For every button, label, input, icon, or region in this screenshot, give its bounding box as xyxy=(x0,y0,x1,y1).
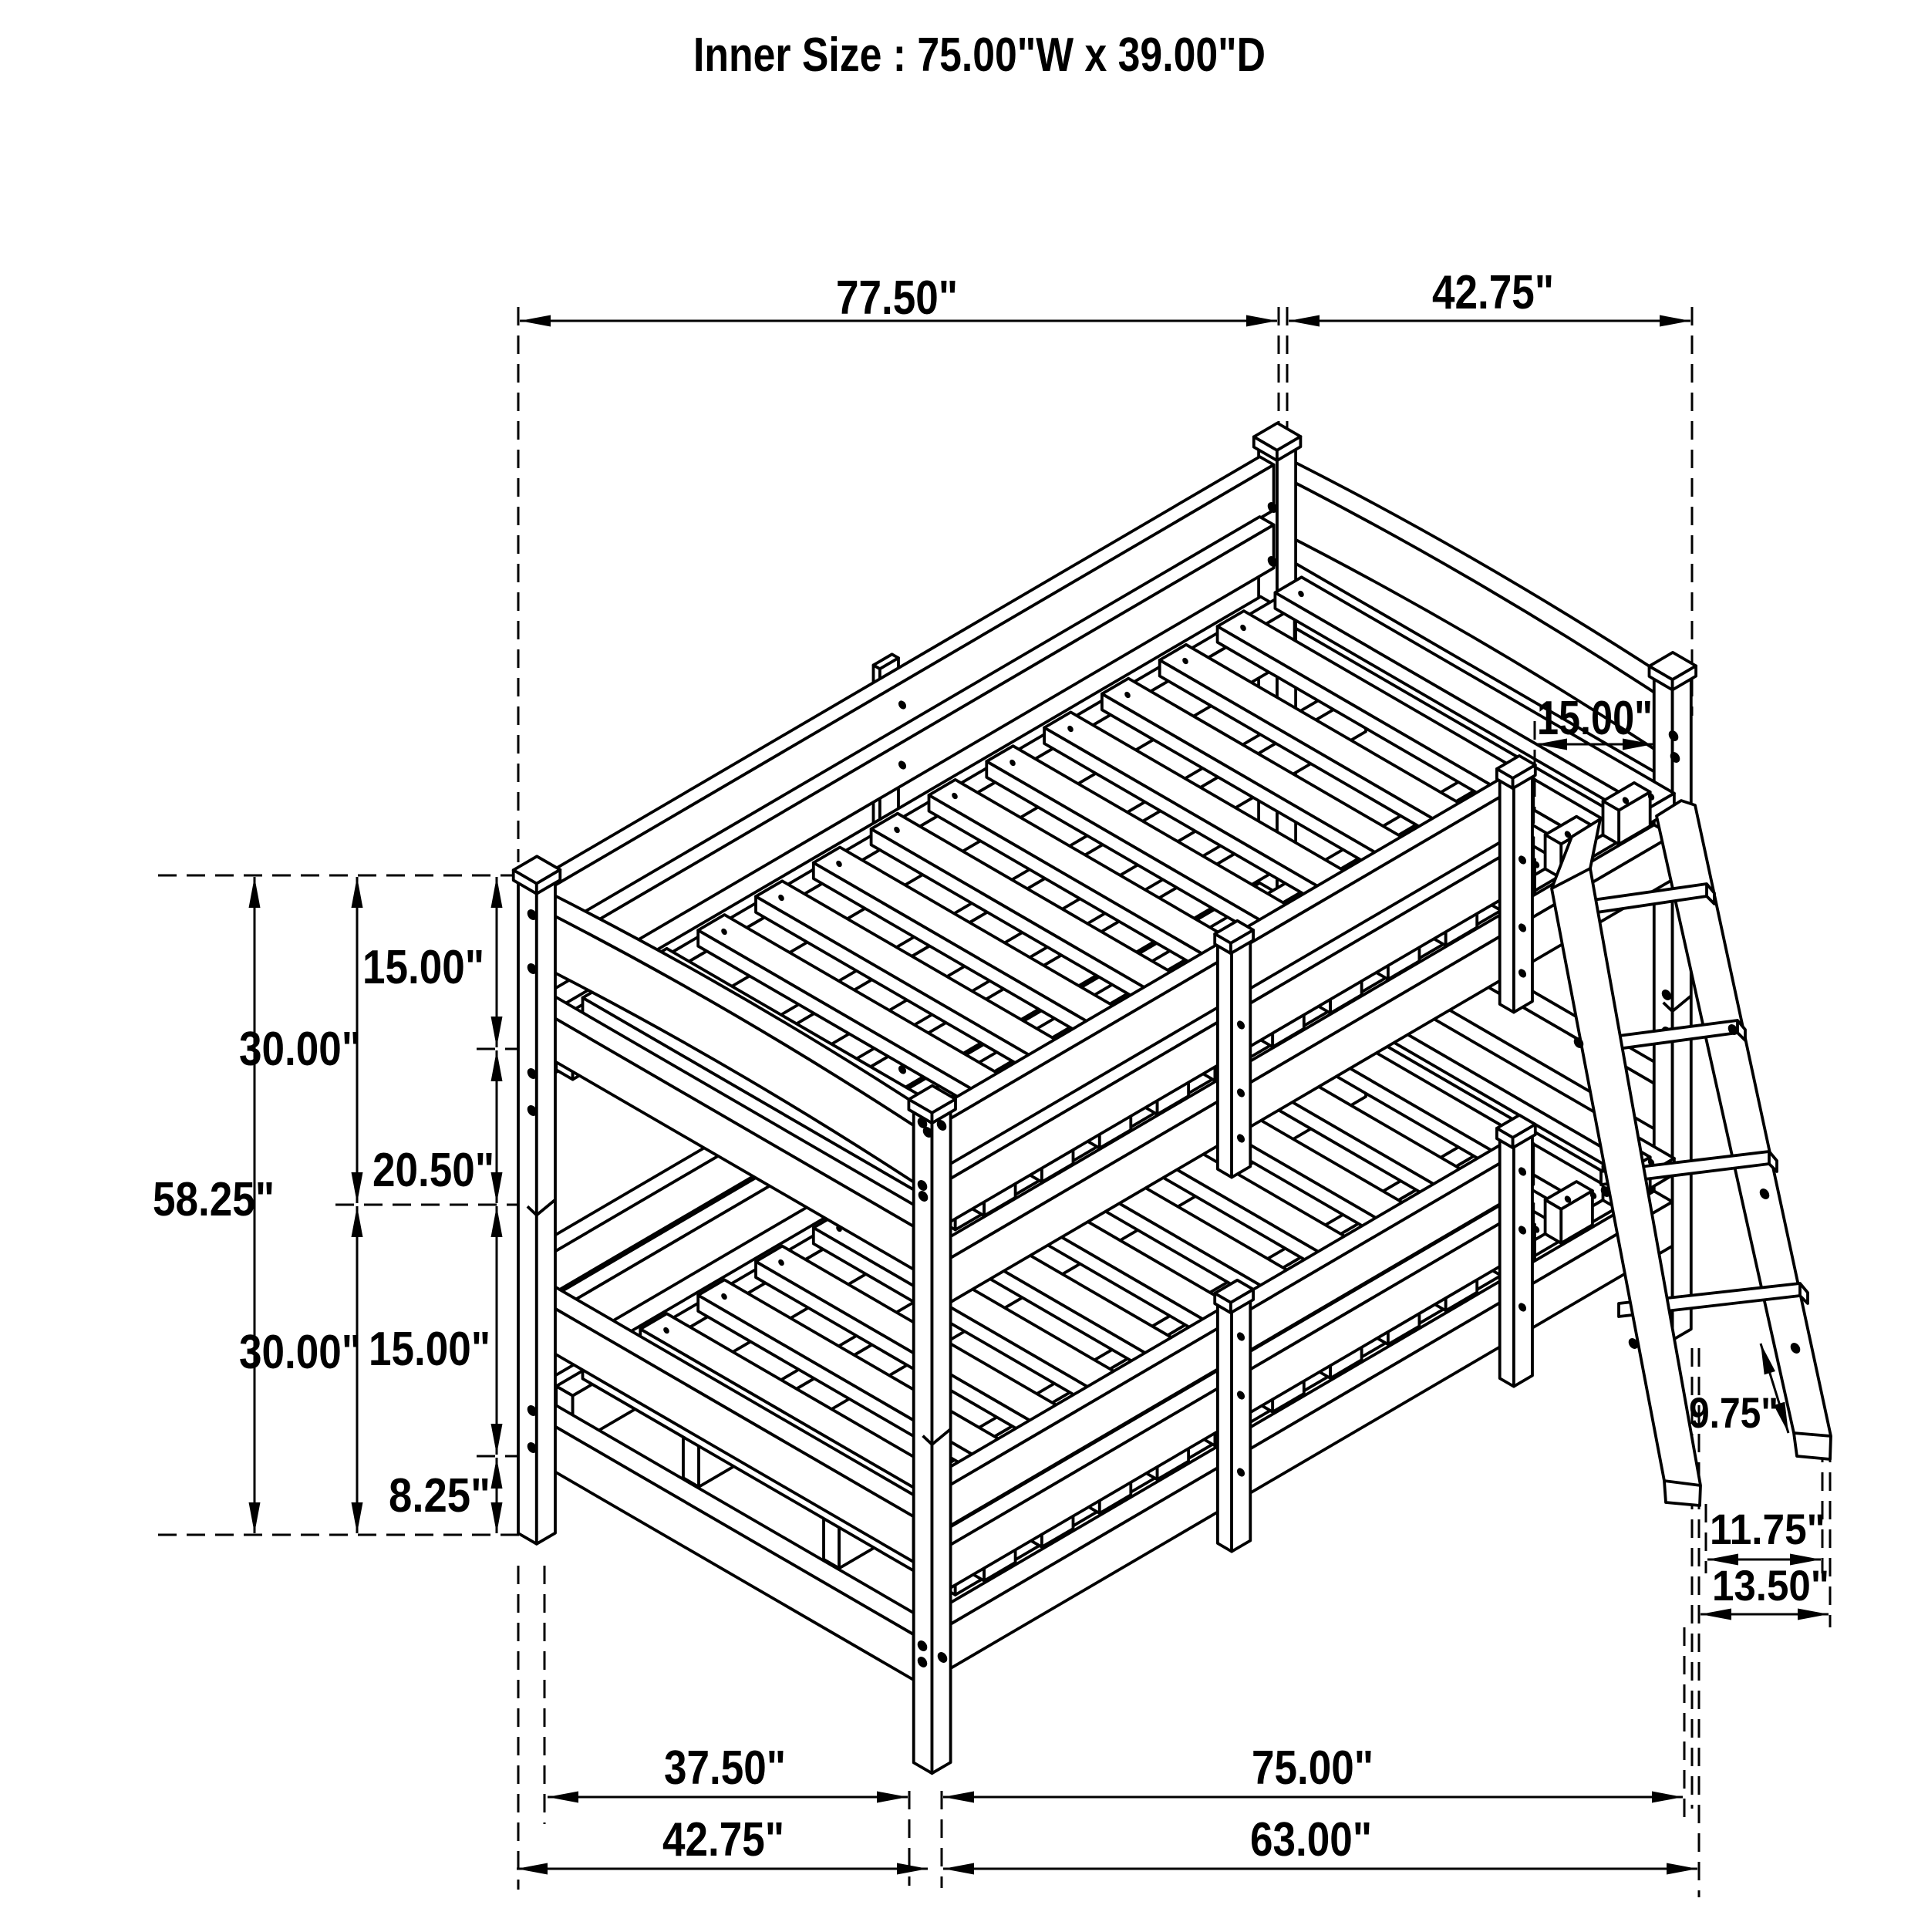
svg-text:30.00": 30.00" xyxy=(239,1326,361,1379)
svg-text:13.50": 13.50" xyxy=(1712,1561,1829,1610)
svg-text:77.50": 77.50" xyxy=(836,271,958,325)
svg-text:75.00": 75.00" xyxy=(1252,1741,1374,1795)
svg-text:15.00": 15.00" xyxy=(369,1323,490,1376)
svg-text:37.50": 37.50" xyxy=(664,1741,786,1795)
svg-text:9.75": 9.75" xyxy=(1689,1388,1778,1437)
svg-text:15.00": 15.00" xyxy=(1537,692,1653,745)
svg-text:Inner Size : 75.00"W x 39.00"D: Inner Size : 75.00"W x 39.00"D xyxy=(693,29,1266,82)
svg-text:42.75": 42.75" xyxy=(1432,266,1554,319)
svg-text:11.75": 11.75" xyxy=(1710,1505,1825,1553)
svg-text:63.00": 63.00" xyxy=(1250,1813,1372,1866)
svg-text:15.00": 15.00" xyxy=(362,941,484,994)
svg-text:42.75": 42.75" xyxy=(662,1813,784,1866)
svg-text:58.25": 58.25" xyxy=(153,1173,275,1226)
svg-text:20.50": 20.50" xyxy=(372,1144,494,1197)
svg-text:8.25": 8.25" xyxy=(389,1469,490,1522)
svg-text:30.00": 30.00" xyxy=(239,1023,361,1076)
